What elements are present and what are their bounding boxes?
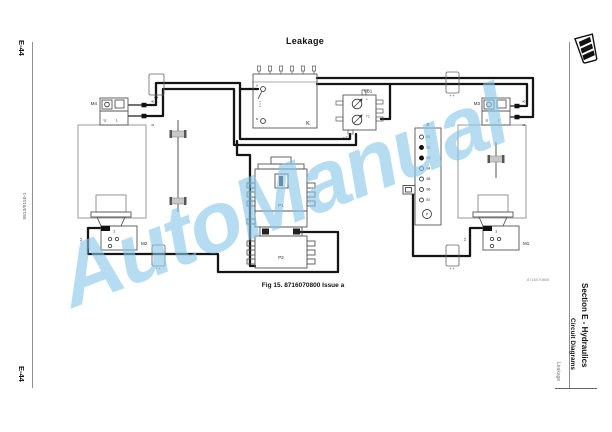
vb1-corner-mark: + T	[343, 136, 348, 140]
m1-label: M1	[523, 241, 530, 246]
m1-wire-number: 16	[463, 237, 467, 241]
wire-vb1-right	[381, 84, 390, 119]
lead-wires	[128, 105, 517, 117]
m4-label: M4	[91, 101, 98, 106]
clamp-icon	[170, 197, 187, 205]
b-terminal-label: B1	[427, 135, 431, 139]
m2-sensor	[91, 195, 137, 250]
b-terminal-label: B3	[427, 156, 431, 160]
k-unit	[253, 66, 317, 128]
jcb-logo: JCB	[572, 30, 602, 73]
m4-wire-number-bottom: 41	[151, 123, 155, 127]
vb1-valve	[336, 90, 383, 134]
m2-pin1: 1	[113, 229, 116, 234]
hose-lines	[178, 120, 496, 212]
vb1-label: VB1	[364, 89, 373, 94]
splice-mark: + +	[449, 94, 454, 98]
b-terminal-label: B5	[427, 177, 431, 181]
m4-pin-u: U	[104, 118, 107, 123]
m3-wire-number-bottom: 41	[522, 123, 526, 127]
circuit-diagram: + + + + + + + +	[0, 0, 612, 432]
clamp-icon	[170, 130, 187, 138]
k-terminal-b: B	[256, 117, 258, 121]
m3-label: M3	[474, 101, 481, 106]
clamp-symbols	[170, 130, 505, 205]
m2-label: M2	[141, 241, 148, 246]
clamp-icon	[488, 155, 505, 163]
jcb-logo-shield: JCB	[575, 34, 599, 64]
vb1-mark-mid: T2	[366, 115, 370, 119]
p1-label: P1	[278, 203, 284, 208]
b-label: B	[426, 122, 429, 127]
m3-pin-l: L	[498, 118, 501, 123]
splice-bottom-left	[152, 245, 165, 266]
wire-plugs	[142, 103, 520, 120]
b6-plug	[403, 186, 415, 195]
splice-mark: + +	[155, 267, 160, 271]
vb1-mark-top: +	[366, 97, 368, 101]
splice-marks: + + + + + + + +	[153, 94, 454, 271]
m1-sensor	[473, 195, 519, 250]
k-top-pins	[258, 66, 316, 74]
harness-wires	[88, 78, 533, 272]
b-unit	[403, 128, 441, 225]
wire-down-left	[237, 141, 255, 266]
m3-wire-number-top: 40	[522, 100, 526, 104]
m2-wire-number: 16	[79, 237, 83, 241]
tank-right	[458, 125, 526, 218]
k-terminal-a: A	[256, 84, 258, 88]
b-gauge-label: P	[426, 213, 429, 217]
m4-pin-l: L	[116, 118, 119, 123]
p2-label: P2	[278, 255, 284, 260]
k-label: K	[306, 121, 310, 127]
splice-mark: + +	[449, 267, 454, 271]
b-terminal-label: B2	[427, 146, 431, 150]
m1-pin1: 1	[495, 229, 498, 234]
pump-p2-body	[255, 236, 307, 268]
pump-assembly	[247, 157, 315, 268]
m3-pin-u: U	[486, 118, 489, 123]
splice-top-right	[446, 72, 459, 93]
wire-m4-outer	[147, 83, 350, 139]
tank-left	[78, 125, 146, 218]
b-terminal-label: B6	[427, 188, 431, 192]
b-terminal-label: B7	[427, 198, 431, 202]
m4-wire-number-top: 40	[151, 100, 155, 104]
b-terminal-labels: B1 B2 B3 B4 B5 B6 B7	[427, 135, 431, 202]
valve-arrows	[354, 99, 362, 123]
b-terminal-label: B4	[427, 167, 431, 171]
